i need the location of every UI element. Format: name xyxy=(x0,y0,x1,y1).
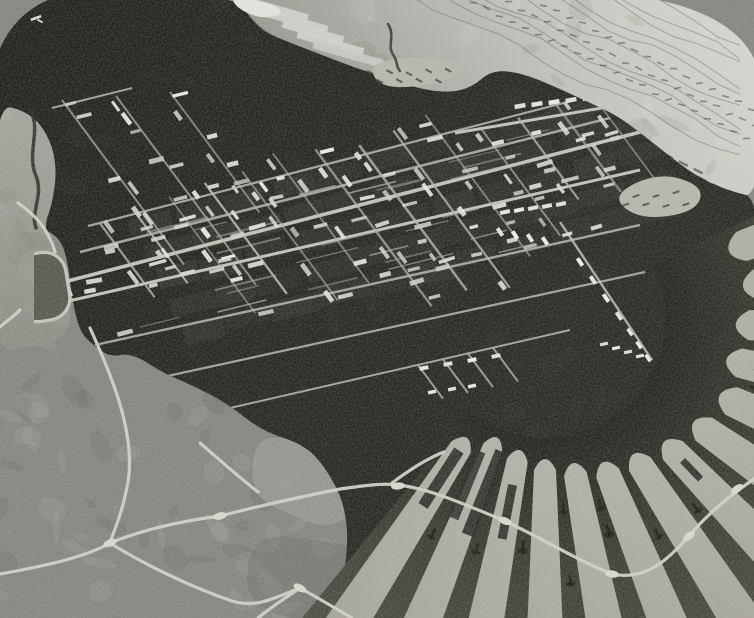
aerial-photo-model xyxy=(0,0,754,618)
film-grain-overlay xyxy=(0,0,754,618)
photo-stage xyxy=(0,0,754,618)
film-grain xyxy=(0,0,754,618)
